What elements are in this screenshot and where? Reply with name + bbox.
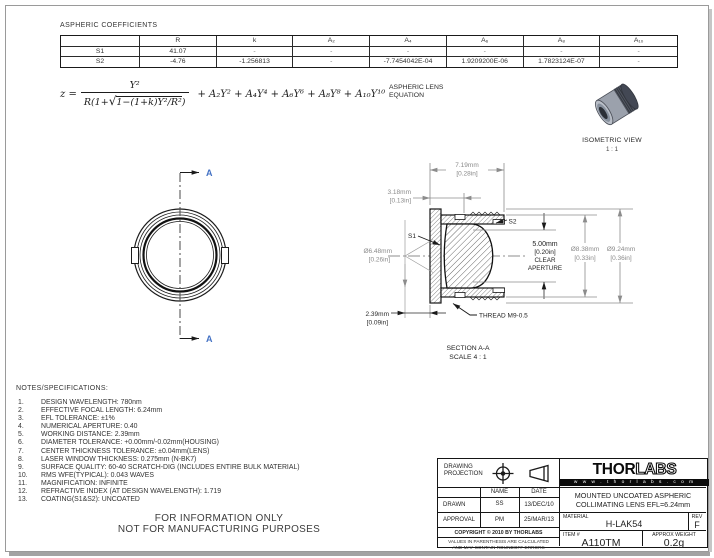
dim-648-label: Ø6.48mm	[363, 248, 392, 255]
drawn-date: 13/DEC/10	[519, 502, 559, 508]
notes-heading: NOTES/SPECIFICATIONS:	[16, 385, 108, 392]
dim-719-label: 7.19mm	[455, 162, 478, 169]
thorlabs-url: w w w . t h o r l a b s . c o m	[560, 479, 709, 487]
thread-relief-bottom	[493, 288, 505, 292]
ca-label-clear: CLEAR	[535, 257, 556, 264]
note-item: 10.RMS WFE(TYPICAL): 0.043 WAVES	[18, 472, 300, 480]
disclaimer-line1: VALUES IN PARENTHESIS ARE CALCULATED	[438, 539, 559, 544]
dim-239-label: 2.39mm	[366, 311, 389, 318]
weight-value: 0.2g	[642, 537, 706, 549]
material-value: H-LAK54	[560, 519, 688, 529]
ca-label-mm: 5.00mm	[532, 241, 557, 248]
note-item: 8.LASER WINDOW THICKNESS: 0.275mm (N-BK7…	[18, 456, 300, 464]
product-title-line1: MOUNTED UNCOATED ASPHERIC	[560, 491, 706, 500]
dim-719-label-in: [0.28in]	[456, 171, 478, 178]
note-item: 12.REFRACTIVE INDEX (AT DESIGN WAVELENGT…	[18, 488, 300, 496]
s2-label: S2	[509, 219, 517, 226]
note-item: 13.COATING(S1&S2): UNCOATED	[18, 496, 300, 504]
dim-239	[391, 305, 446, 318]
isometric-view	[592, 82, 641, 128]
dim-924-label: Ø9.24mm	[607, 246, 636, 253]
note-item: 4.NUMERICAL APERTURE: 0.40	[18, 423, 300, 431]
thread-leader	[453, 304, 477, 316]
spanner-slot-right	[222, 248, 229, 264]
ca-label-aperture: APERTURE	[528, 265, 562, 272]
title-block: DRAWING PROJECTION NAME DATE DRAWN SS 13…	[437, 458, 708, 548]
iso-view-caption: ISOMETRIC VIEW	[566, 137, 658, 144]
aspheric-lens-section	[444, 224, 493, 288]
rev-value: F	[688, 520, 706, 530]
item-number: A110TM	[560, 537, 642, 549]
dim-318-label: 3.18mm	[388, 189, 411, 196]
dim-838-label: Ø8.38mm	[571, 246, 600, 253]
note-item: 1.DESIGN WAVELENGTH: 780nm	[18, 399, 300, 407]
dim-318	[413, 193, 481, 213]
copyright: COPYRIGHT © 2010 BY THORLABS	[438, 530, 559, 536]
projection-label: DRAWING PROJECTION	[444, 464, 483, 478]
s1-label: S1	[408, 233, 416, 240]
drawing-sheet: ASPHERIC COEFFICIENTS R k A₂ A₄ A₆ A₈ A₁…	[0, 0, 714, 558]
notes-list: 1.DESIGN WAVELENGTH: 780nm 2.EFFECTIVE F…	[18, 399, 300, 504]
section-caption: SECTION A-A	[446, 345, 490, 352]
projection-symbols	[490, 460, 556, 487]
disclaimer-line2: AND MAY CONTAIN ROUNDOFF ERRORS	[438, 545, 559, 550]
spanner-slot-left	[132, 248, 139, 264]
drawn-label: DRAWN	[443, 502, 465, 508]
section-label-bottom: A	[206, 334, 213, 344]
product-title-line2: COLLIMATING LENS EFL=6.24mm	[560, 500, 706, 509]
note-item: 5.WORKING DISTANCE: 2.39mm	[18, 431, 300, 439]
dim-648-label-in: [0.26in]	[369, 257, 391, 264]
approval-label: APPROVAL	[443, 517, 475, 523]
section-label-top: A	[206, 168, 213, 178]
front-view: A A	[132, 168, 229, 344]
note-item: 11.MAGNIFICATION: INFINITE	[18, 480, 300, 488]
thread-label: THREAD M9-0.5	[479, 313, 528, 320]
ca-label-in: [0.20in]	[534, 249, 556, 256]
retaining-slot-bottom	[455, 292, 465, 297]
note-item: 2.EFFECTIVE FOCAL LENGTH: 6.24mm	[18, 407, 300, 415]
dim-239-label-in: [0.09in]	[367, 320, 389, 327]
iso-view-scale: 1 : 1	[566, 146, 658, 153]
section-view: 7.19mm [0.28in] 3.18mm [0.13in] Ø6.48mm …	[363, 159, 639, 361]
note-item: 7.CENTER THICKNESS TOLERANCE: ±0.04mm(LE…	[18, 448, 300, 456]
dim-838-label-in: [0.33in]	[574, 255, 596, 262]
dim-318-label-in: [0.13in]	[390, 198, 412, 205]
information-only-notice: FOR INFORMATION ONLY NOT FOR MANUFACTURI…	[108, 513, 330, 535]
note-item: 9.SURFACE QUALITY: 60-40 SCRATCH-DIG (IN…	[18, 464, 300, 472]
approval-name: PM	[480, 517, 519, 523]
name-header: NAME	[480, 489, 519, 495]
dim-924-label-in: [0.36in]	[610, 255, 632, 262]
thorlabs-logo: THORLABS	[560, 461, 709, 478]
note-item: 3.EFL TOLERANCE: ±1%	[18, 415, 300, 423]
date-header: DATE	[519, 489, 559, 495]
section-scale: SCALE 4 : 1	[449, 354, 487, 361]
retaining-slot-top	[455, 214, 465, 219]
drawn-name: SS	[480, 501, 519, 507]
approval-date: 25/MAR/13	[519, 517, 559, 523]
note-item: 6.DIAMETER TOLERANCE: +0.00mm/-0.02mm(HO…	[18, 439, 300, 447]
